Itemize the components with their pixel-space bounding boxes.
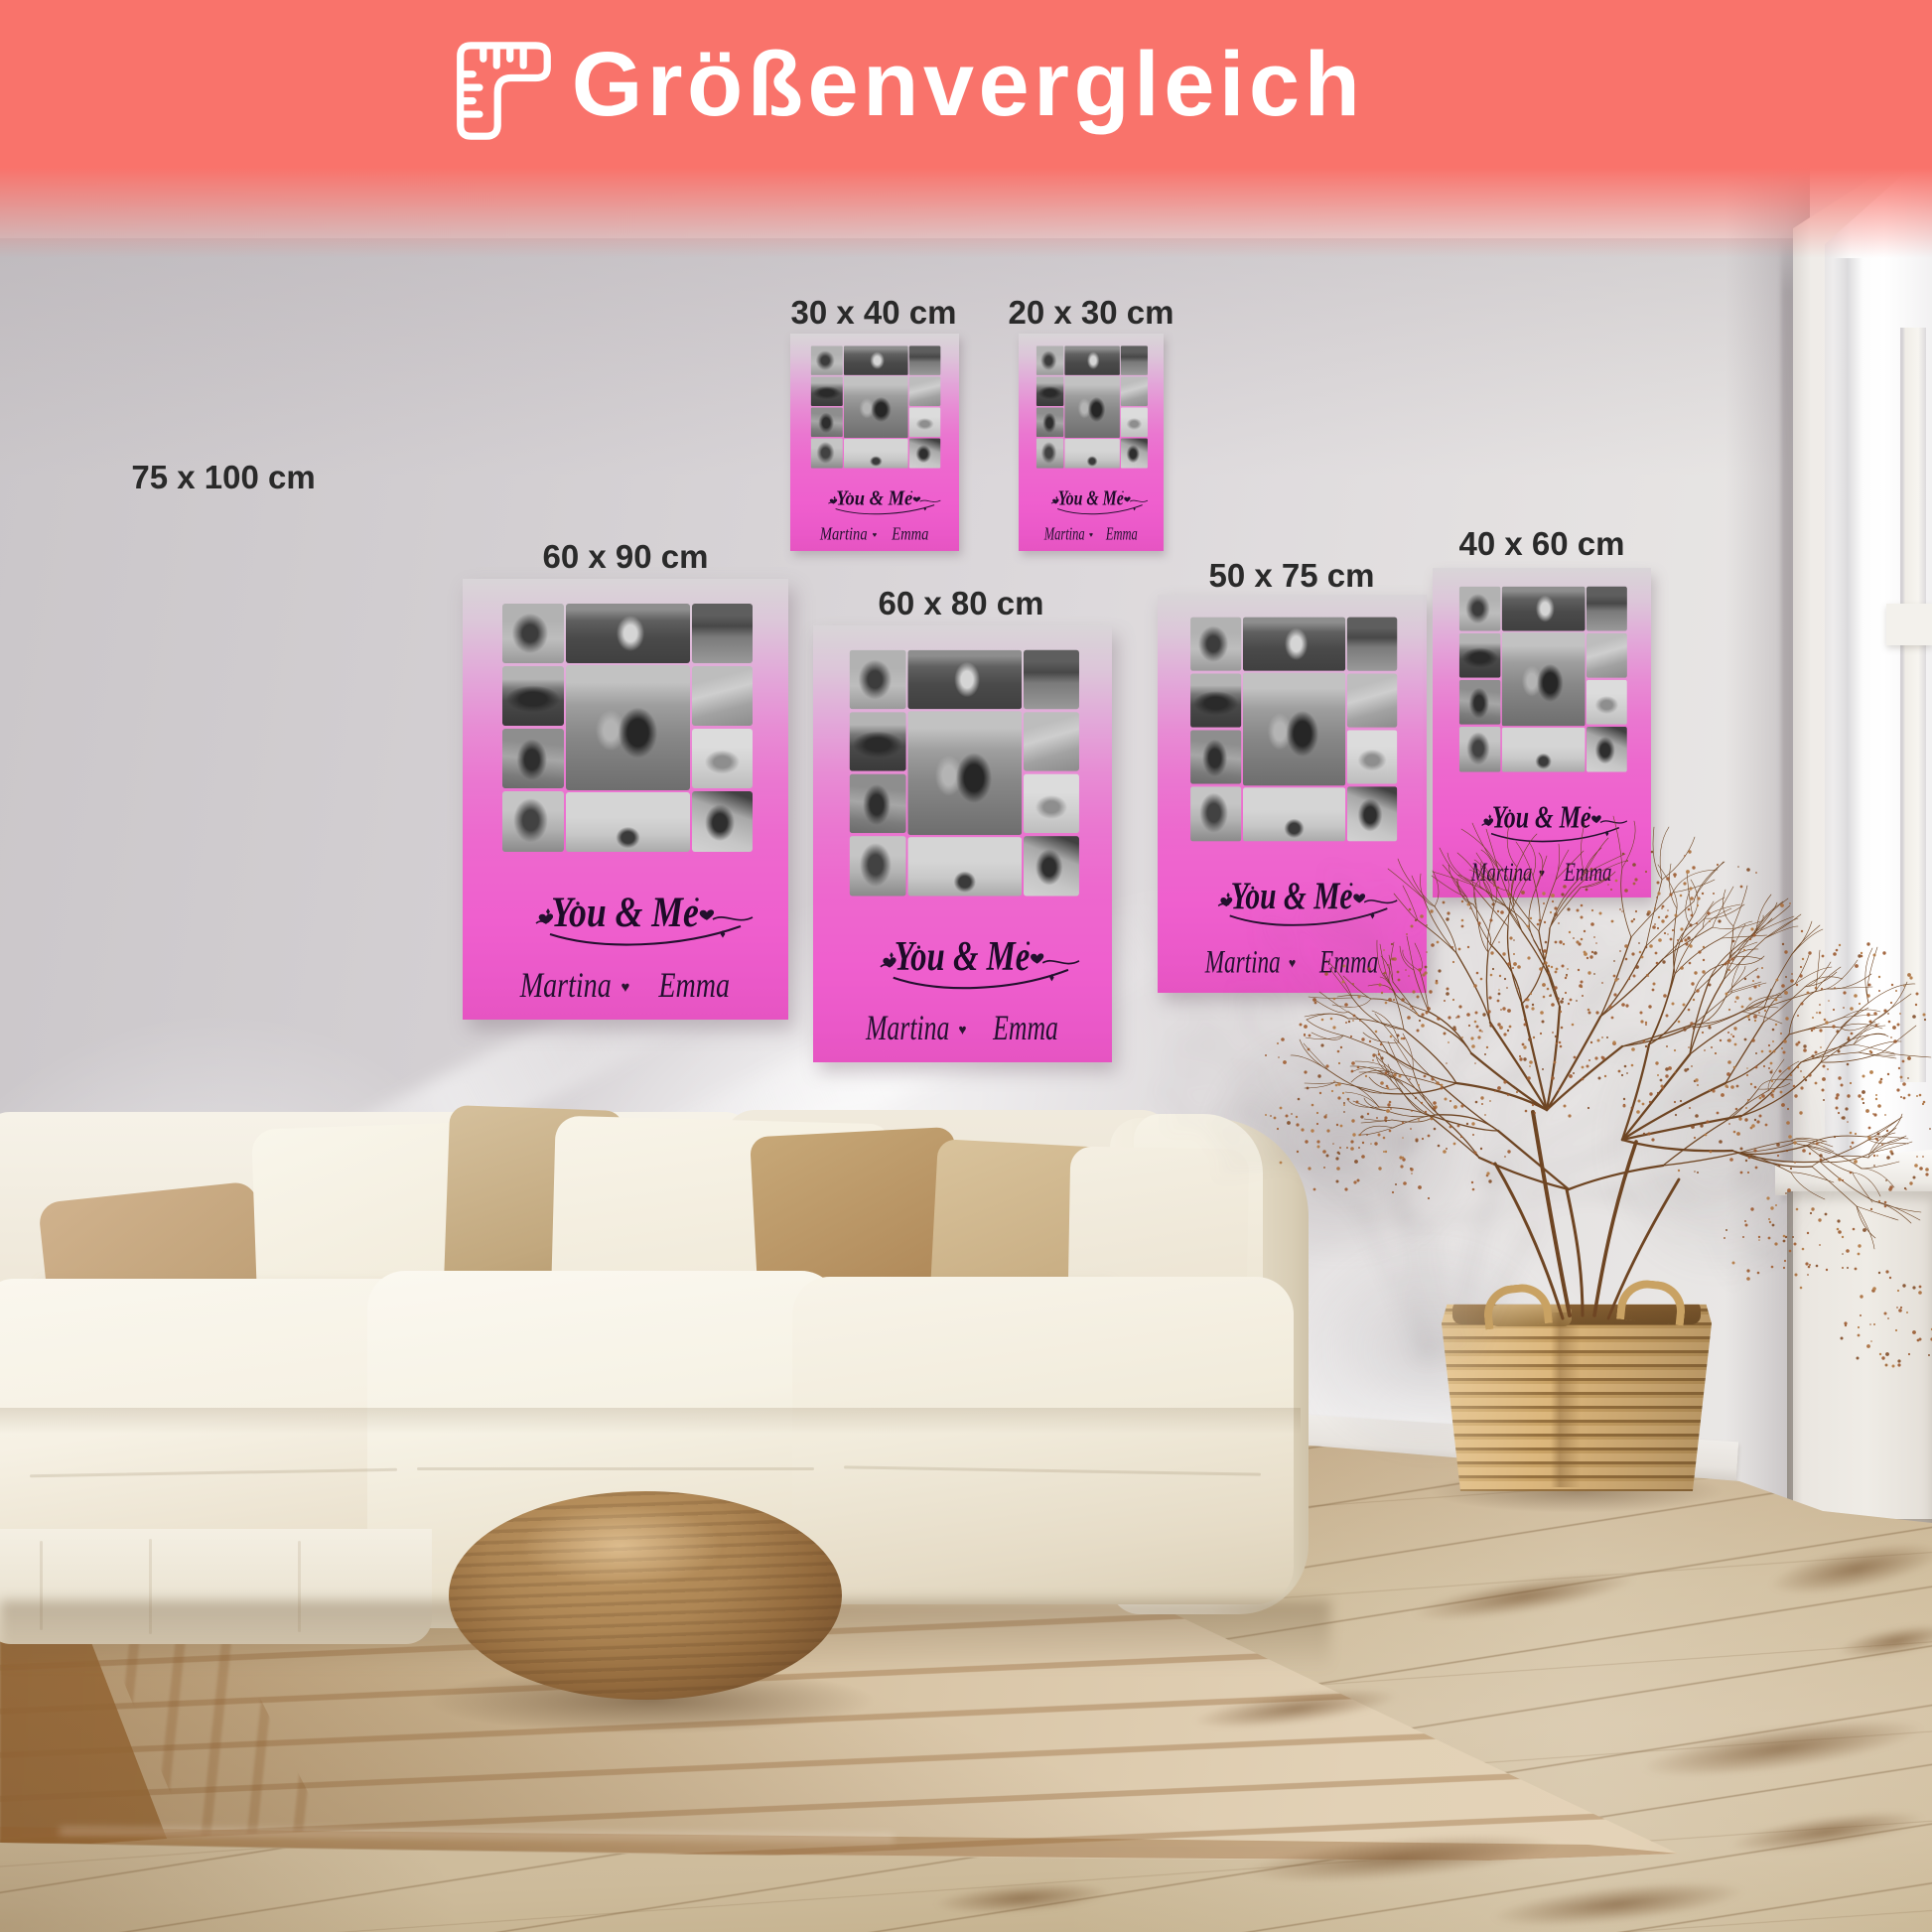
- svg-text:Martina: Martina: [865, 1009, 949, 1047]
- svg-text:Emma: Emma: [891, 524, 928, 544]
- svg-text:Martina: Martina: [819, 524, 868, 544]
- svg-text:Emma: Emma: [1105, 525, 1138, 545]
- svg-text:Martina: Martina: [1043, 525, 1085, 545]
- svg-text:♥: ♥: [1089, 532, 1093, 539]
- svg-text:Martina: Martina: [519, 966, 612, 1005]
- svg-text:You & Me: You & Me: [836, 487, 912, 510]
- svg-text:♥: ♥: [958, 1023, 966, 1039]
- svg-text:You & Me: You & Me: [1058, 487, 1124, 511]
- svg-text:♥: ♥: [621, 979, 630, 996]
- svg-text:♥: ♥: [873, 530, 878, 539]
- svg-text:Emma: Emma: [657, 966, 730, 1005]
- svg-text:You & Me: You & Me: [551, 889, 699, 936]
